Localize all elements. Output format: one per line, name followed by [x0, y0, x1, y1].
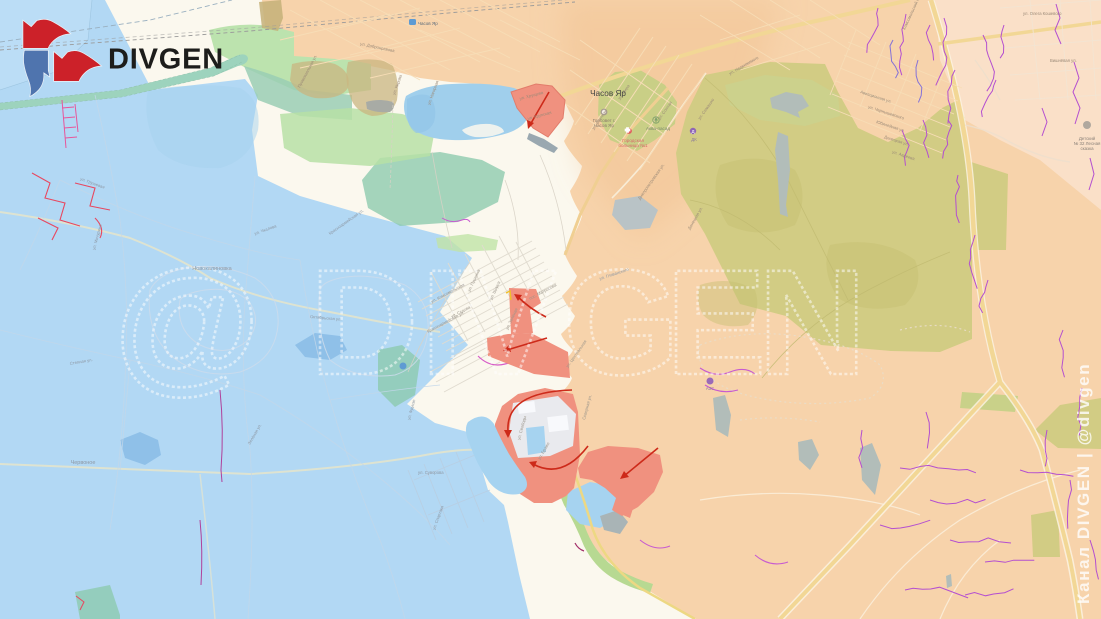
svg-text:Новокалиновка: Новокалиновка — [192, 266, 232, 272]
svg-text:@DIVGEN: @DIVGEN — [114, 238, 866, 406]
svg-text:ул. Олега Кошевого: ул. Олега Кошевого — [1023, 11, 1062, 16]
svg-text:больница №1: больница №1 — [618, 143, 648, 148]
svg-text:Часов Яр: Часов Яр — [590, 89, 626, 98]
svg-text:DIVGEN: DIVGEN — [108, 44, 224, 76]
svg-text:ул. Суворова: ул. Суворова — [418, 470, 444, 475]
svg-text:Аква-пасад: Аква-пасад — [646, 126, 670, 131]
svg-text:ДК: ДК — [691, 137, 697, 142]
svg-text:Вишнёвая ул.: Вишнёвая ул. — [1050, 58, 1077, 63]
svg-text:Часов Яр: Часов Яр — [418, 21, 438, 26]
svg-text:сказка: сказка — [1080, 146, 1094, 151]
svg-text:Червоное: Червоное — [71, 460, 96, 466]
svg-text:Канал DIVGEN | @divgen: Канал DIVGEN | @divgen — [1074, 363, 1093, 604]
svg-text:АЗС: АЗС — [706, 386, 714, 391]
svg-text:Д: Д — [691, 129, 694, 134]
